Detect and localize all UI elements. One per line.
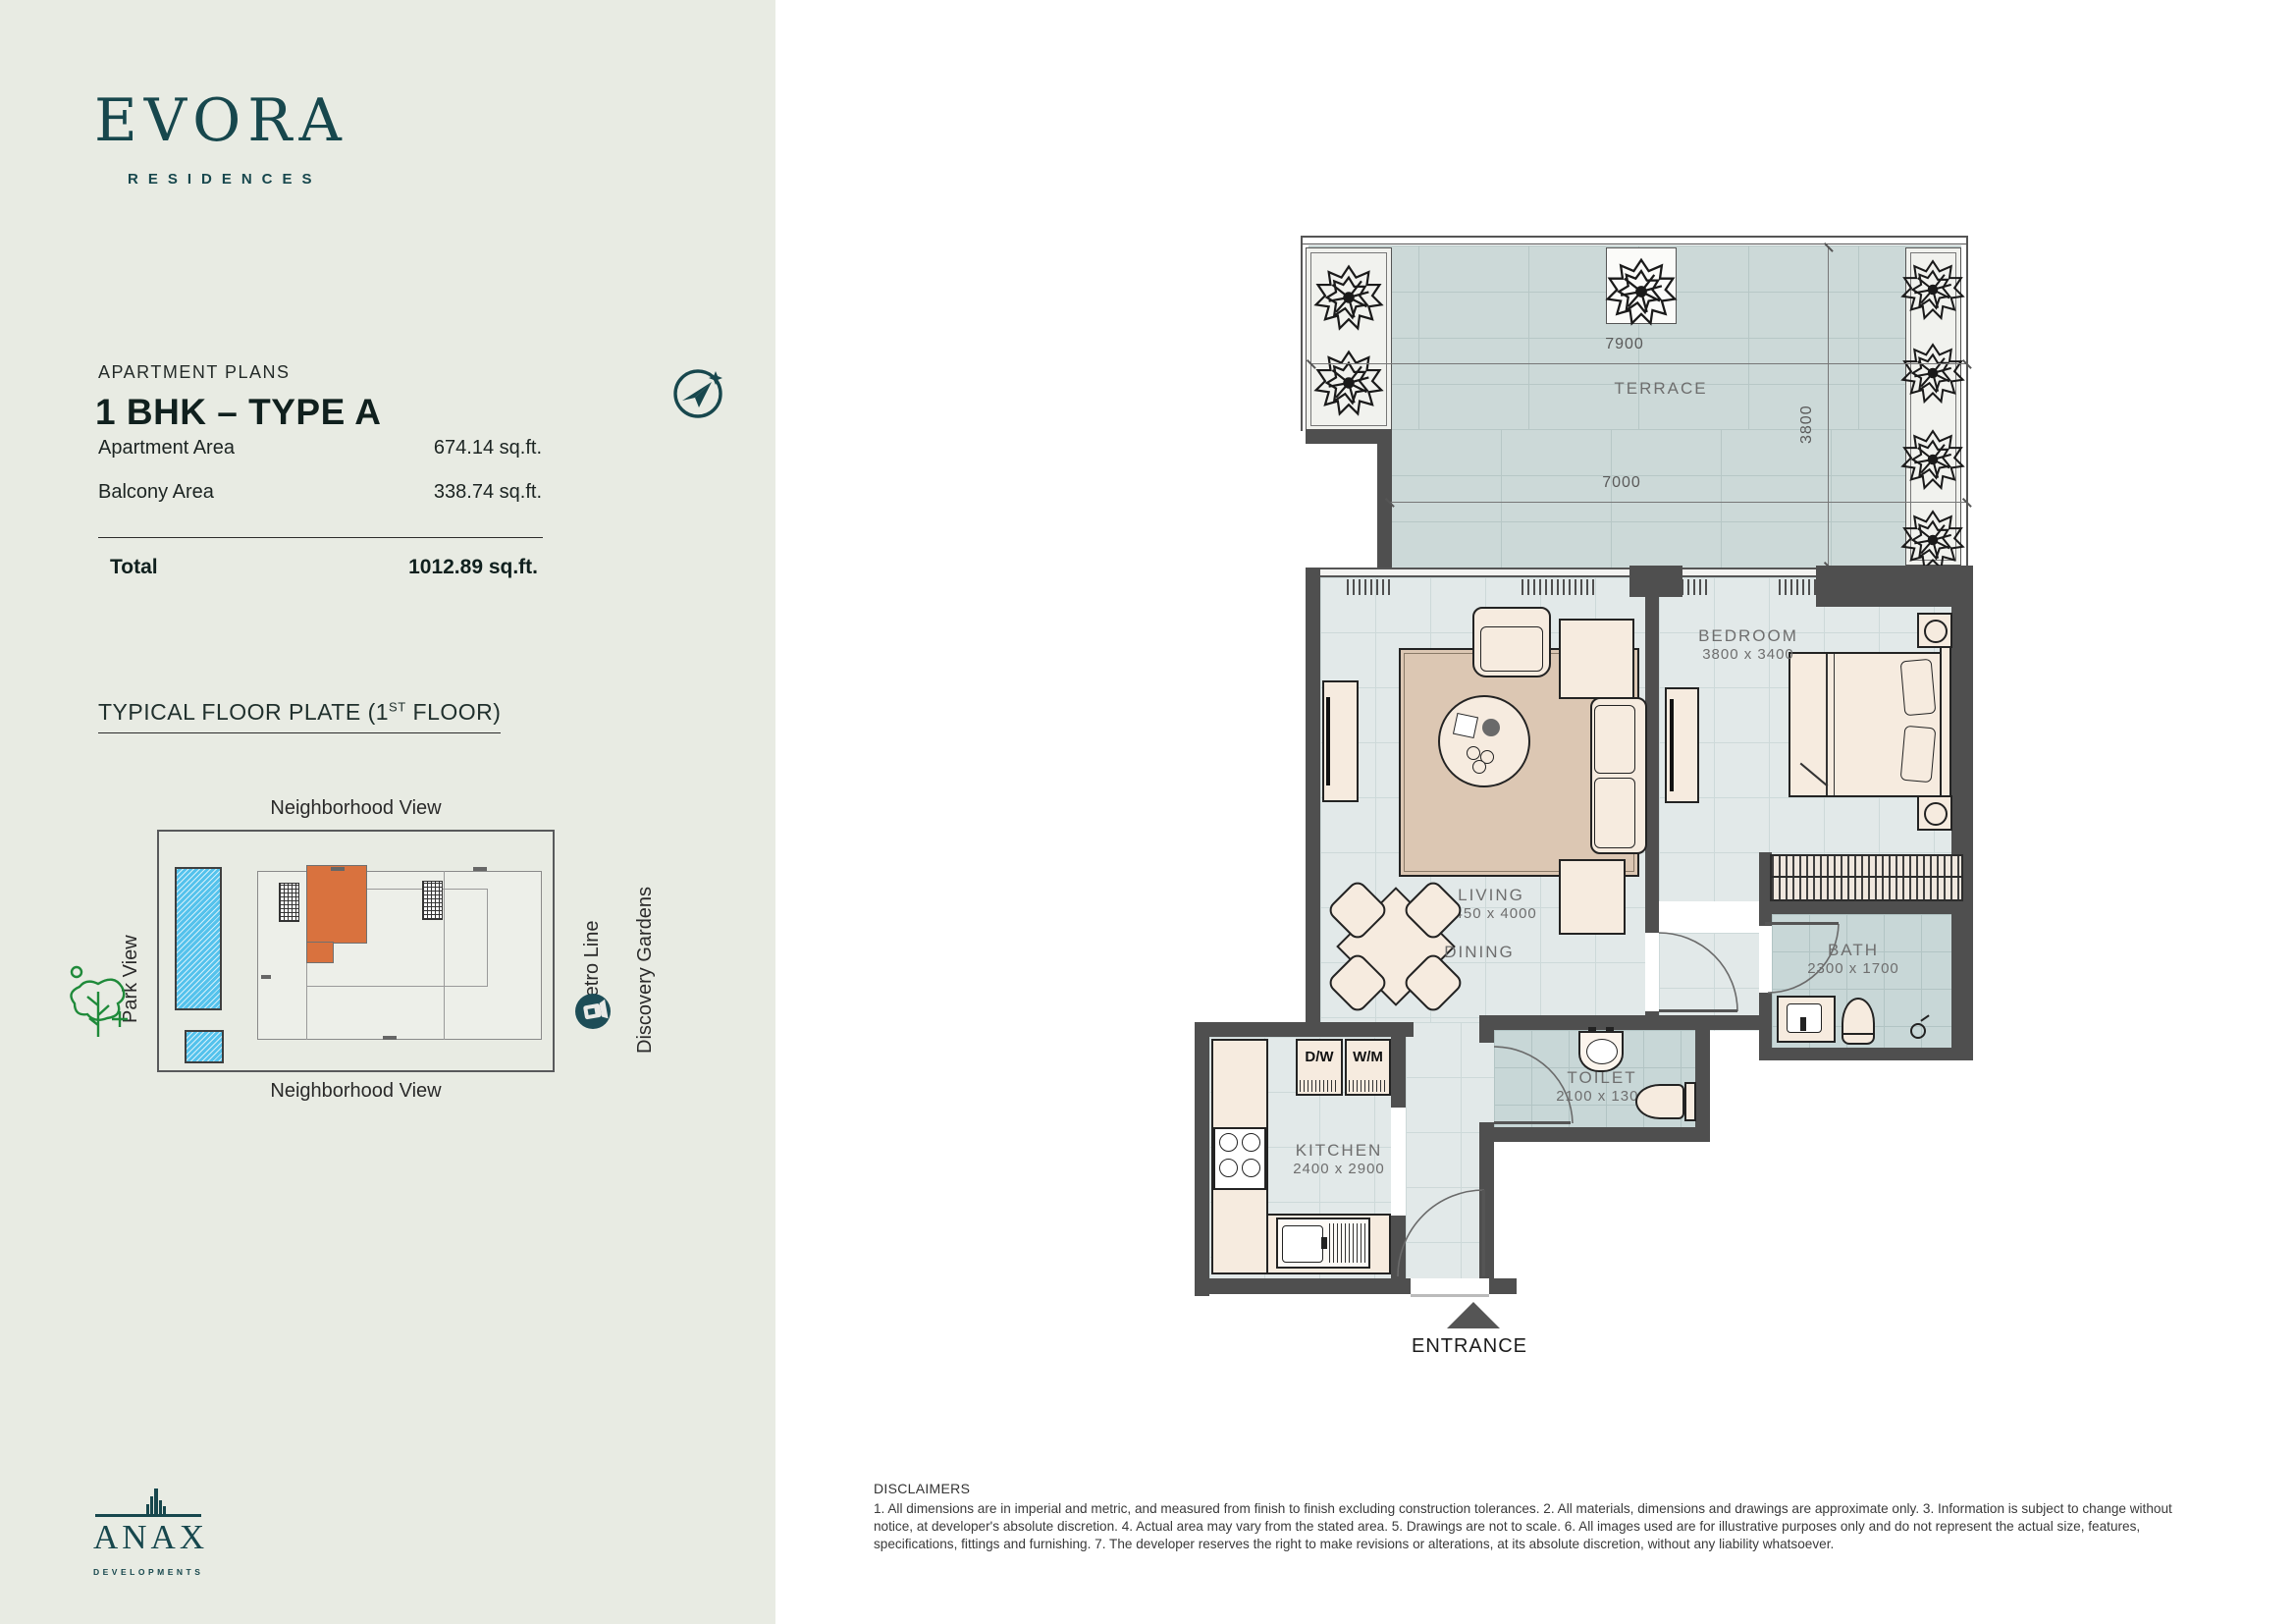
stair-core-icon [279, 883, 299, 922]
bath-dim: 2300 x 1700 [1775, 960, 1932, 977]
pool [175, 867, 222, 1010]
wc-bowl [1635, 1084, 1684, 1119]
door-leaf [1765, 922, 1839, 925]
lamp-icon [1924, 802, 1948, 826]
burner-icon [1242, 1133, 1260, 1152]
sink-basin [1282, 1225, 1323, 1263]
faucet-icon [1321, 1237, 1327, 1249]
floor-plan: 7900 TERRACE 3800 7000 [1190, 236, 1985, 1365]
appliance-front [1349, 1080, 1387, 1092]
pillow [1900, 659, 1937, 717]
floor-plate-title-suffix: FLOOR) [406, 699, 502, 725]
dining-label: DINING [1415, 943, 1543, 962]
floor-plate-title: TYPICAL FLOOR PLATE (1ST FLOOR) [98, 699, 501, 733]
total-label: Total [110, 556, 158, 579]
faucet-icon [1800, 1017, 1806, 1031]
table-plant [1482, 719, 1500, 736]
page-title: 1 BHK – TYPE A [95, 392, 381, 433]
kitchen-label: KITCHEN 2400 x 2900 [1260, 1141, 1417, 1177]
balcony-area-value: 338.74 sq.ft. [294, 481, 542, 504]
washing-machine-label: W/M [1345, 1049, 1391, 1072]
burner-icon [1219, 1159, 1238, 1177]
blanket-line [1834, 654, 1835, 795]
brand-logo: EVORA [94, 86, 348, 155]
dishwasher-label: D/W [1296, 1049, 1343, 1072]
bed-headboard [1940, 646, 1951, 803]
bath-name: BATH [1775, 941, 1932, 960]
side-table [1559, 619, 1634, 699]
window-tick [383, 1036, 397, 1040]
park-tree-icon [67, 964, 132, 1049]
burner-icon [1242, 1159, 1260, 1177]
door-leaf [1659, 1009, 1737, 1012]
discovery-gardens-label: Discovery Gardens [634, 842, 657, 1054]
bath-toilet [1842, 998, 1875, 1045]
appliance-front [1300, 1080, 1339, 1092]
bedroom-label: BEDROOM 3800 x 3400 [1670, 626, 1827, 663]
balcony-area-label: Balcony Area [98, 481, 214, 504]
floor-plate-title-prefix: TYPICAL FLOOR PLATE (1 [98, 699, 389, 725]
window-tick [473, 867, 487, 871]
total-value: 1012.89 sq.ft. [294, 556, 538, 579]
floor-plate-figure [157, 830, 555, 1072]
wc-tank [1684, 1082, 1696, 1121]
toilet-sink-basin [1586, 1039, 1618, 1064]
door-leaf [1482, 1190, 1485, 1276]
entrance-arrow-icon [1447, 1302, 1500, 1328]
table-decor [1467, 746, 1480, 760]
brand-tagline: RESIDENCES [128, 171, 322, 188]
window-tick [261, 975, 271, 979]
disclaimers-title: DISCLAIMERS [874, 1481, 970, 1496]
blanket-line [1826, 654, 1828, 795]
apartment-area-value: 674.14 sq.ft. [294, 437, 542, 460]
lamp-icon [1924, 620, 1948, 643]
wardrobe [1770, 854, 1963, 901]
tv-icon [1670, 699, 1674, 791]
developer-subtitle: DEVELOPMENTS [93, 1567, 203, 1577]
neighborhood-view-top-label: Neighborhood View [157, 797, 555, 820]
faucet-icon [1588, 1027, 1596, 1031]
table-decor [1472, 760, 1486, 774]
pillow [1900, 726, 1937, 784]
highlighted-unit [306, 865, 367, 944]
sidebar-panel: EVORA RESIDENCES APARTMENT PLANS 1 BHK –… [0, 0, 775, 1624]
plans-eyebrow: APARTMENT PLANS [98, 362, 291, 383]
toilet-seat-line [1843, 1033, 1873, 1035]
bedroom-dim: 3800 x 3400 [1670, 646, 1827, 663]
neighborhood-view-bottom-label: Neighborhood View [157, 1080, 555, 1103]
kitchen-dim: 2400 x 2900 [1260, 1161, 1417, 1177]
door-leaf [1494, 1121, 1571, 1124]
total-divider [98, 537, 543, 538]
developer-logo: ANAX DEVELOPMENTS [93, 1489, 203, 1582]
wardrobe-rail [1772, 876, 1961, 878]
metro-icon [573, 992, 613, 1031]
kitchen-name: KITCHEN [1260, 1141, 1417, 1161]
kids-pool [185, 1030, 224, 1063]
highlighted-unit-notch [306, 942, 334, 963]
entrance-label: ENTRANCE [1381, 1335, 1558, 1358]
floor-plate-title-sup: ST [389, 699, 406, 714]
bath-label: BATH 2300 x 1700 [1775, 941, 1932, 977]
window-tick [331, 867, 345, 871]
shower-icon [1910, 1023, 1926, 1039]
table-decor [1453, 713, 1478, 738]
stair-core-icon [422, 881, 443, 920]
coffee-table [1438, 695, 1530, 787]
disclaimers-body: 1. All dimensions are in imperial and me… [874, 1500, 2194, 1553]
bedroom-name: BEDROOM [1670, 626, 1827, 646]
faucet-icon [1606, 1027, 1614, 1031]
burner-icon [1219, 1133, 1238, 1152]
compass-icon [670, 365, 727, 422]
apartment-area-label: Apartment Area [98, 437, 235, 460]
sink-drainer [1329, 1223, 1366, 1263]
tv-icon [1326, 697, 1330, 785]
developer-name: ANAX [93, 1518, 203, 1557]
